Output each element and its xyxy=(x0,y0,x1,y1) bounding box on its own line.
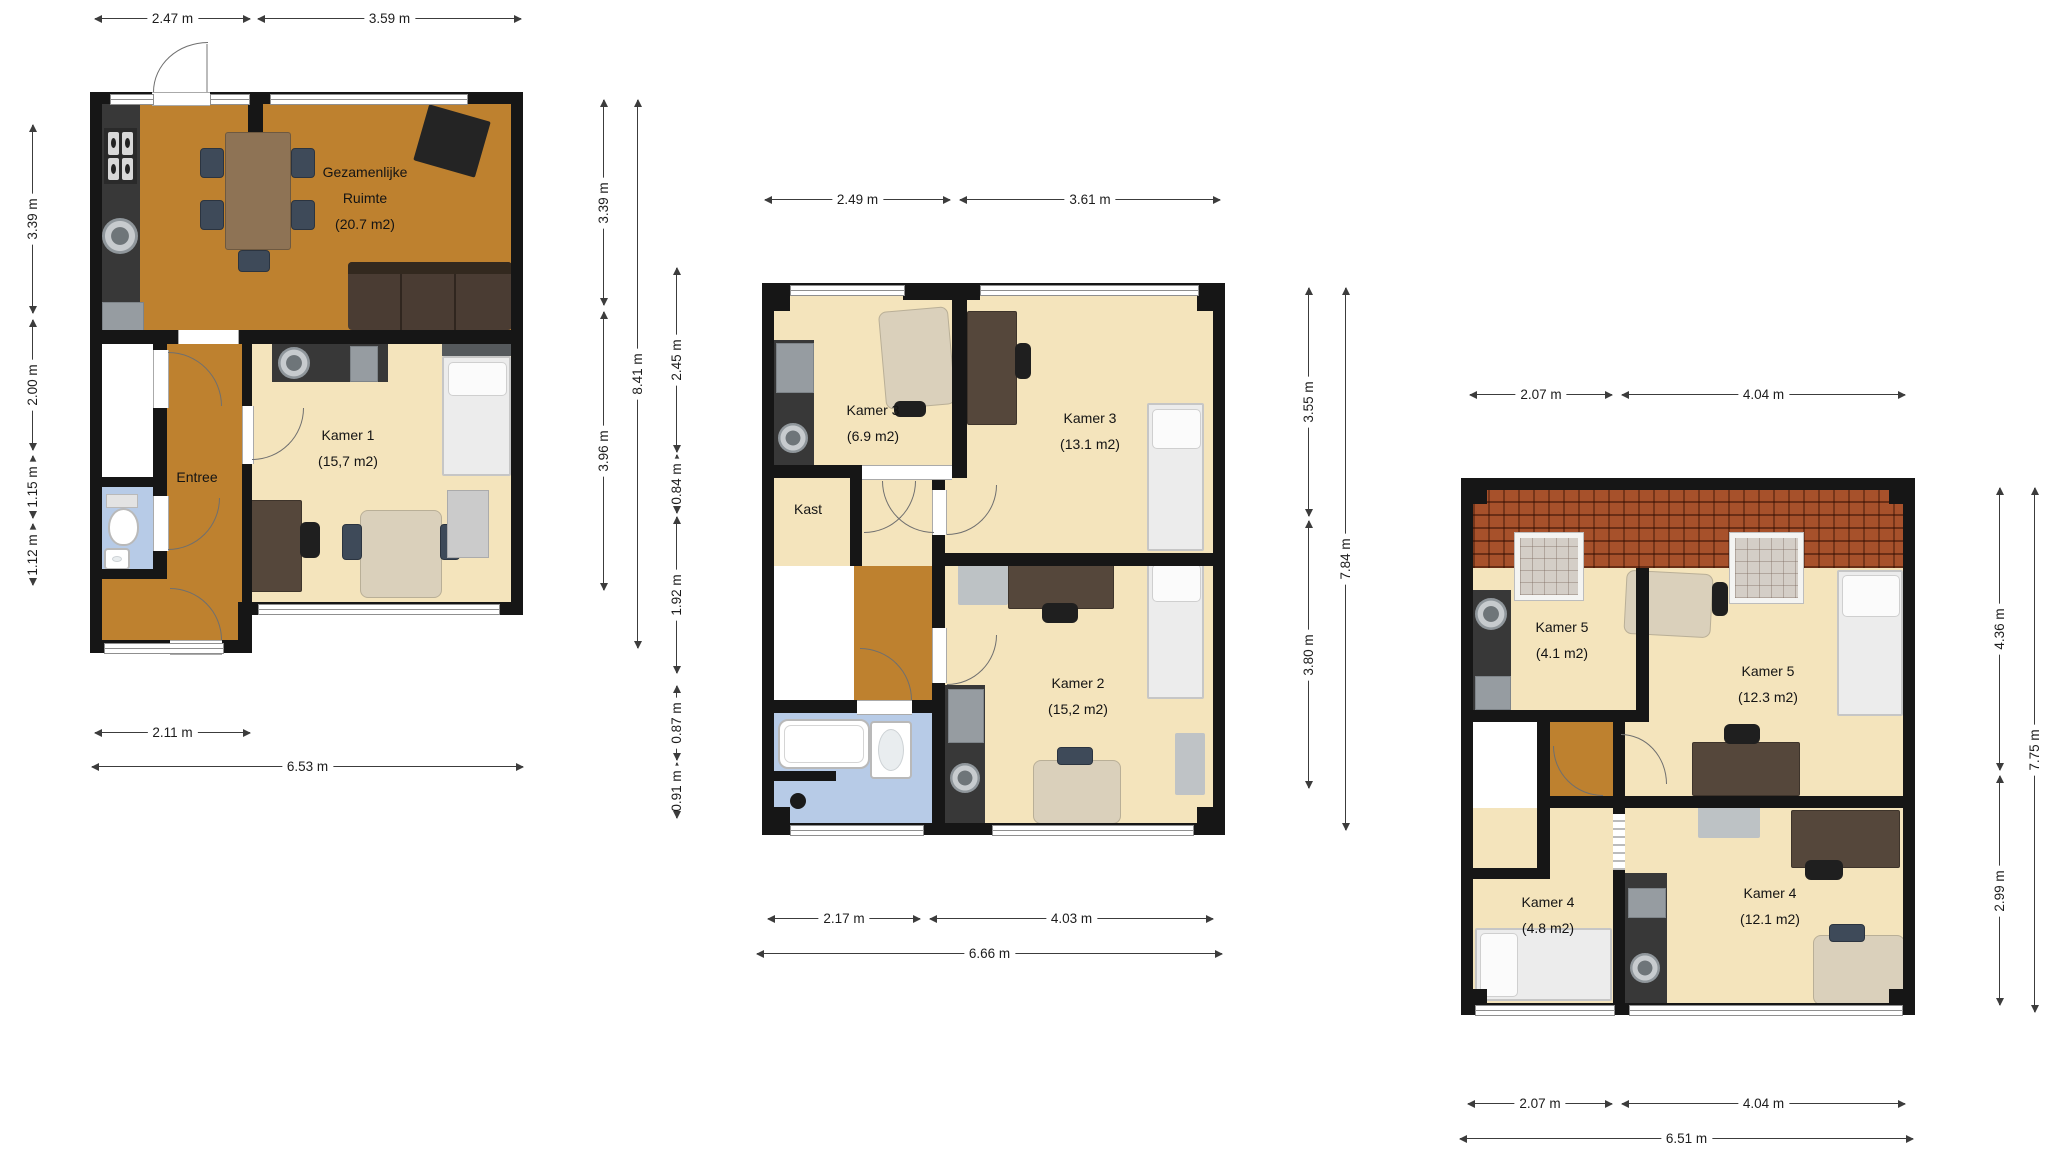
kamer4-sink-icon xyxy=(1630,953,1660,983)
wall-top xyxy=(1461,478,1915,490)
dim-ground-bottom-total: 6.53 m xyxy=(92,766,523,767)
door-opening-kamer2 xyxy=(932,628,947,683)
room-name: Kamer 4 xyxy=(1522,889,1575,915)
dim-label: 2.47 m xyxy=(147,11,198,27)
dim-label: 7.84 m xyxy=(1338,533,1354,584)
pillow xyxy=(1152,409,1201,449)
wall-stagger xyxy=(238,602,252,653)
pillow xyxy=(1480,933,1518,997)
dim-second-top-2: 4.04 m xyxy=(1622,394,1905,395)
room-name: Kamer 1 xyxy=(318,422,378,448)
second-floor-plan: Kamer 5 (4.1 m2) Kamer 5 (12.3 m2) Kamer… xyxy=(1461,478,1915,1015)
dim-second-right-1: 4.36 m xyxy=(1999,488,2000,770)
corner-block xyxy=(762,283,790,311)
dim-label: 1.12 m xyxy=(25,529,41,580)
wall-kamer3a-right xyxy=(952,295,967,478)
room-name: Kamer 3 xyxy=(1060,405,1120,431)
bathroom-sink-icon xyxy=(870,721,912,779)
door-opening-kamer4 xyxy=(1613,814,1625,870)
desk xyxy=(250,500,302,592)
dim-label: 3.55 m xyxy=(1301,376,1317,427)
room-area: (15,2 m2) xyxy=(1048,696,1108,722)
sofa xyxy=(348,262,512,330)
corner-block xyxy=(762,807,790,835)
kamer5b-desk2-chair xyxy=(1724,724,1760,744)
wall-stairs-bottom xyxy=(1473,868,1550,879)
room-label-kamer5b: Kamer 5 (12.3 m2) xyxy=(1738,658,1798,710)
nightstand xyxy=(447,490,489,558)
dim-first-bottom-2: 4.03 m xyxy=(930,918,1213,919)
room-label-common: Gezamenlijke Ruimte (20.7 m2) xyxy=(323,159,408,237)
dim-ground-top-1: 2.47 m xyxy=(95,18,250,19)
wall-top-stub xyxy=(903,283,980,300)
front-door-opening xyxy=(152,92,210,106)
dim-label: 0.91 m xyxy=(669,765,685,816)
dim-ground-left-1: 3.39 m xyxy=(32,125,33,313)
dim-first-bottom-total: 6.66 m xyxy=(757,953,1222,954)
dim-first-top-2: 3.61 m xyxy=(960,199,1220,200)
window xyxy=(992,825,1194,836)
window xyxy=(1629,1005,1903,1016)
kitchen-appliance xyxy=(102,302,144,332)
wall-corridor-right xyxy=(242,344,252,602)
dim-label: 0.87 m xyxy=(669,697,685,748)
chair xyxy=(342,524,362,560)
entry-door-arc xyxy=(153,42,208,92)
room-area: (12.1 m2) xyxy=(1740,906,1800,932)
room-label-kamer2: Kamer 2 (15,2 m2) xyxy=(1048,670,1108,722)
room-name: Kamer 5 xyxy=(1738,658,1798,684)
dim-first-left-1: 2.45 m xyxy=(676,268,677,452)
room-label-kamer4b: Kamer 4 (12.1 m2) xyxy=(1740,880,1800,932)
door-opening-bathroom xyxy=(857,700,912,715)
toilet-tank-icon xyxy=(106,494,138,508)
kamer1-appliance xyxy=(350,346,378,382)
window xyxy=(104,643,224,654)
dim-first-right-total: 7.84 m xyxy=(1345,288,1346,830)
kamer1-sink-icon xyxy=(278,347,310,379)
door-opening-stairs xyxy=(153,350,169,408)
dim-label: 2.17 m xyxy=(818,911,869,927)
dim-first-left-2: 0.84 m xyxy=(676,455,677,513)
kamer5b-desk2 xyxy=(1692,742,1800,796)
room-area: (12.3 m2) xyxy=(1738,684,1798,710)
dim-ground-left-4: 1.12 m xyxy=(32,524,33,585)
room-area: (20.7 m2) xyxy=(323,211,408,237)
dining-table xyxy=(225,132,291,250)
room-label-kamer1: Kamer 1 (15,7 m2) xyxy=(318,422,378,474)
kamer4b-desk-chair xyxy=(1805,860,1843,880)
dim-label: 6.51 m xyxy=(1661,1131,1712,1147)
room-area: (4.1 m2) xyxy=(1536,640,1589,666)
pillow xyxy=(448,362,507,396)
chair-mat xyxy=(958,563,1008,605)
wall-left xyxy=(1461,478,1473,1015)
window xyxy=(210,94,250,105)
wall-kast-top xyxy=(774,465,862,478)
room-name: Kamer 5 xyxy=(1536,614,1589,640)
room-area: (6.9 m2) xyxy=(847,423,900,449)
pillow xyxy=(1152,564,1201,602)
dim-second-bottom-2: 4.04 m xyxy=(1622,1103,1905,1104)
dim-label: 3.59 m xyxy=(364,11,415,27)
dim-label: 6.66 m xyxy=(964,946,1015,962)
window xyxy=(980,285,1199,296)
bathtub-icon xyxy=(778,719,870,769)
dining-chair xyxy=(291,200,315,230)
dim-label: 4.04 m xyxy=(1738,1096,1789,1112)
pillow xyxy=(1842,575,1900,617)
dining-chair xyxy=(200,148,224,178)
bed-headboard xyxy=(442,344,511,356)
dim-label: 2.99 m xyxy=(1992,865,2008,916)
kamer5b-desk-chair xyxy=(1712,582,1728,616)
wall-left xyxy=(762,283,774,835)
room-label-kast: Kast xyxy=(794,496,822,522)
kast-floor xyxy=(774,478,850,566)
room-name: Gezamenlijke xyxy=(323,159,408,185)
wall-right xyxy=(511,92,523,615)
ground-floor-plan: Gezamenlijke Ruimte (20.7 m2) Kamer 1 (1… xyxy=(90,92,523,660)
corner-block xyxy=(1197,283,1225,311)
room-name: Ruimte xyxy=(323,185,408,211)
dim-ground-left-3: 1.15 m xyxy=(32,456,33,518)
office-chair xyxy=(300,522,320,558)
dim-first-left-3: 1.92 m xyxy=(676,517,677,673)
dim-label: 4.03 m xyxy=(1046,911,1097,927)
dining-chair xyxy=(200,200,224,230)
room-name: Kamer 4 xyxy=(1740,880,1800,906)
wall-kast-right xyxy=(850,478,862,566)
door-opening-kamer2-top xyxy=(932,490,947,535)
wall-kamer5-divider xyxy=(1636,568,1649,722)
dim-first-left-4: 0.87 m xyxy=(676,686,677,760)
dim-label: 1.15 m xyxy=(25,461,41,512)
kamer2-chair xyxy=(1042,603,1078,623)
dim-second-bottom-1: 2.07 m xyxy=(1468,1103,1612,1104)
dim-ground-left-2: 2.00 m xyxy=(32,320,33,450)
room-label-kamer3b: Kamer 3 (13.1 m2) xyxy=(1060,405,1120,457)
room-area: (15,7 m2) xyxy=(318,448,378,474)
dim-label: 3.39 m xyxy=(25,193,41,244)
dim-label: 3.39 m xyxy=(596,177,612,228)
room-label-kamer3a: Kamer 3 (6.9 m2) xyxy=(847,397,900,449)
wall-stairs-right xyxy=(1537,722,1550,868)
room-label-entree: Entree xyxy=(176,464,217,490)
room-area: (4.8 m2) xyxy=(1522,915,1575,941)
dim-ground-right-total: 8.41 m xyxy=(637,100,638,648)
wall-right xyxy=(1213,283,1225,835)
wall-stairs-bottom xyxy=(90,477,167,487)
dim-first-right-1: 3.55 m xyxy=(1308,288,1309,516)
dim-first-top-1: 2.49 m xyxy=(765,199,950,200)
room-label-kamer5a: Kamer 5 (4.1 m2) xyxy=(1536,614,1589,666)
kamer5a-sink-icon xyxy=(1475,598,1507,630)
gray-rug xyxy=(1175,733,1205,795)
dim-label: 4.36 m xyxy=(1992,603,2008,654)
dining-chair xyxy=(291,148,315,178)
dim-second-top-1: 2.07 m xyxy=(1470,394,1612,395)
kamer2-table-chair xyxy=(1057,747,1093,765)
wall-top-stub xyxy=(248,104,263,132)
window xyxy=(110,94,154,105)
kamer3a-sink-icon xyxy=(778,423,808,453)
room-name: Kamer 3 xyxy=(847,397,900,423)
dim-ground-bottom-1: 2.11 m xyxy=(95,732,250,733)
door-opening-living xyxy=(178,330,239,344)
room-area: (13.1 m2) xyxy=(1060,431,1120,457)
toilet-sink-icon xyxy=(104,548,130,570)
dim-second-bottom-total: 6.51 m xyxy=(1460,1138,1913,1139)
floorplan-page: Gezamenlijke Ruimte (20.7 m2) Kamer 1 (1… xyxy=(0,0,2048,1152)
dim-label: 2.07 m xyxy=(1515,387,1566,403)
dim-ground-right-2: 3.96 m xyxy=(603,312,604,590)
dim-ground-top-2: 3.59 m xyxy=(258,18,521,19)
kamer2-appliance xyxy=(948,689,984,743)
wall-right xyxy=(1903,478,1915,1015)
table xyxy=(360,510,442,598)
room-label-kamer4a: Kamer 4 (4.8 m2) xyxy=(1522,889,1575,941)
window xyxy=(270,94,468,105)
wall-horizontal xyxy=(1549,796,1903,808)
dim-second-right-total: 7.75 m xyxy=(2034,488,2035,1012)
kamer3b-chair xyxy=(1015,343,1031,379)
toilet-icon xyxy=(108,508,139,546)
wall-toilet-bottom xyxy=(90,569,167,579)
dining-chair xyxy=(238,250,270,272)
dim-label: 2.49 m xyxy=(832,192,883,208)
dim-label: 1.92 m xyxy=(669,569,685,620)
dim-label: 3.96 m xyxy=(596,425,612,476)
door-opening-corridor xyxy=(862,465,952,480)
window xyxy=(790,285,905,296)
kamer4-appliance xyxy=(1628,888,1666,918)
kamer5a-appliance xyxy=(1475,676,1511,710)
dim-label: 3.61 m xyxy=(1064,192,1115,208)
dim-first-left-5: 0.91 m xyxy=(676,763,677,818)
kamer3a-desk xyxy=(878,306,956,410)
dim-first-right-2: 3.80 m xyxy=(1308,521,1309,788)
wall-divider xyxy=(90,330,523,344)
dim-label: 2.07 m xyxy=(1514,1096,1565,1112)
window xyxy=(1475,1005,1615,1016)
skylight-window xyxy=(1730,533,1803,603)
bath-wall-stub xyxy=(774,771,836,781)
corner-block xyxy=(1197,807,1225,835)
shower-drain-icon xyxy=(790,793,806,809)
wall-kamer5a-bottom xyxy=(1473,710,1636,722)
wall-kamer3b-bottom xyxy=(932,553,1213,566)
dim-label: 2.11 m xyxy=(147,725,197,741)
door-opening-toilet xyxy=(153,496,169,551)
room-name: Kamer 2 xyxy=(1048,670,1108,696)
dim-label: 2.45 m xyxy=(669,334,685,385)
entry-door-leaf xyxy=(206,44,208,92)
kamer2-sink-icon xyxy=(950,763,980,793)
window xyxy=(790,825,924,836)
dim-ground-right-1: 3.39 m xyxy=(603,100,604,305)
dim-label: 4.04 m xyxy=(1738,387,1789,403)
corner-block xyxy=(1889,478,1915,504)
dim-second-right-2: 2.99 m xyxy=(1999,776,2000,1005)
room-name: Entree xyxy=(176,464,217,490)
kamer2-table xyxy=(1033,760,1121,824)
dim-label: 0.84 m xyxy=(669,458,685,509)
corner-block xyxy=(1461,478,1487,504)
stove-icon xyxy=(104,128,137,184)
dim-first-bottom-1: 2.17 m xyxy=(768,918,920,919)
kamer3b-desk xyxy=(967,311,1017,425)
dim-label: 8.41 m xyxy=(630,348,646,399)
dim-label: 6.53 m xyxy=(282,759,333,775)
first-floor-plan: Kamer 3 (6.9 m2) Kamer 3 (13.1 m2) Kast … xyxy=(762,283,1225,835)
dim-label: 3.80 m xyxy=(1301,629,1317,680)
kitchen-sink-icon xyxy=(102,218,138,254)
kamer3a-appliance xyxy=(776,343,814,393)
window xyxy=(258,604,500,615)
kamer4b-table-chair xyxy=(1829,924,1865,942)
room-name: Kast xyxy=(794,496,822,522)
dim-label: 2.00 m xyxy=(25,359,41,410)
dim-label: 7.75 m xyxy=(2027,724,2043,775)
skylight-window xyxy=(1515,533,1583,600)
kamer4b-desk xyxy=(1791,810,1900,868)
